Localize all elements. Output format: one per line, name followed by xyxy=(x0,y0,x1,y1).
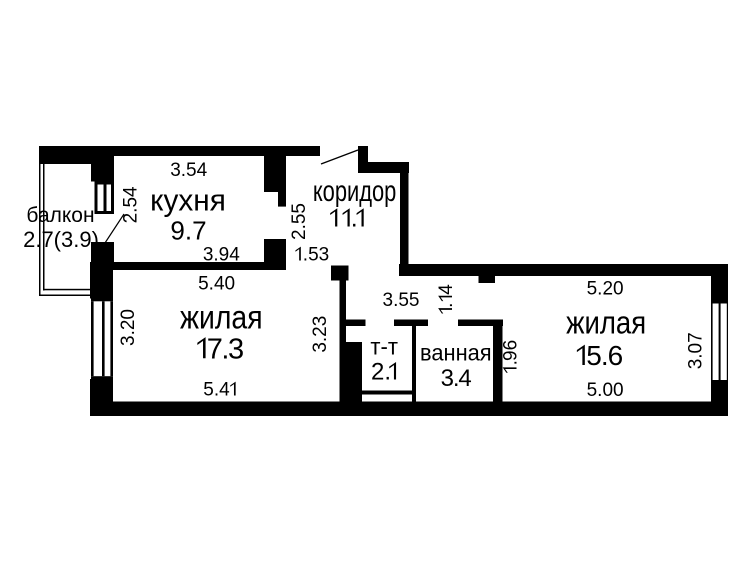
svg-text:.: . xyxy=(351,205,358,233)
svg-text:7.3: 7.3 xyxy=(207,333,243,365)
svg-text:3.54: 3.54 xyxy=(170,160,207,181)
svg-text:4: 4 xyxy=(436,284,457,295)
svg-text:3.07: 3.07 xyxy=(686,332,707,369)
svg-text:3.94: 3.94 xyxy=(203,244,240,265)
svg-text:т-т: т-т xyxy=(370,334,398,360)
svg-text:ванная: ванная xyxy=(420,340,492,366)
svg-text:.: . xyxy=(436,303,457,308)
svg-text:3.23: 3.23 xyxy=(310,316,331,353)
svg-text:3.4: 3.4 xyxy=(441,365,472,392)
svg-text:5.6: 5.6 xyxy=(586,340,622,371)
svg-text:96: 96 xyxy=(501,340,522,361)
svg-text:коридор: коридор xyxy=(313,174,397,208)
svg-text:2.54: 2.54 xyxy=(120,186,141,223)
svg-text:.53: .53 xyxy=(303,245,329,266)
svg-text:5.40: 5.40 xyxy=(198,274,235,295)
svg-text:кухня: кухня xyxy=(150,183,226,218)
svg-text:5.20: 5.20 xyxy=(587,279,624,300)
svg-text:3.20: 3.20 xyxy=(118,309,139,346)
svg-text:балкон: балкон xyxy=(26,204,94,227)
svg-text:жилая: жилая xyxy=(566,306,646,341)
svg-text:9.7: 9.7 xyxy=(170,216,206,246)
svg-text:2.: 2. xyxy=(371,359,391,386)
svg-text:жилая: жилая xyxy=(180,299,263,337)
svg-text:2.55: 2.55 xyxy=(289,203,310,240)
svg-text:2.7(3.9): 2.7(3.9) xyxy=(23,227,99,252)
svg-text:5.4: 5.4 xyxy=(203,380,230,401)
svg-text:3.55: 3.55 xyxy=(383,290,420,311)
svg-text:5.00: 5.00 xyxy=(587,380,624,401)
